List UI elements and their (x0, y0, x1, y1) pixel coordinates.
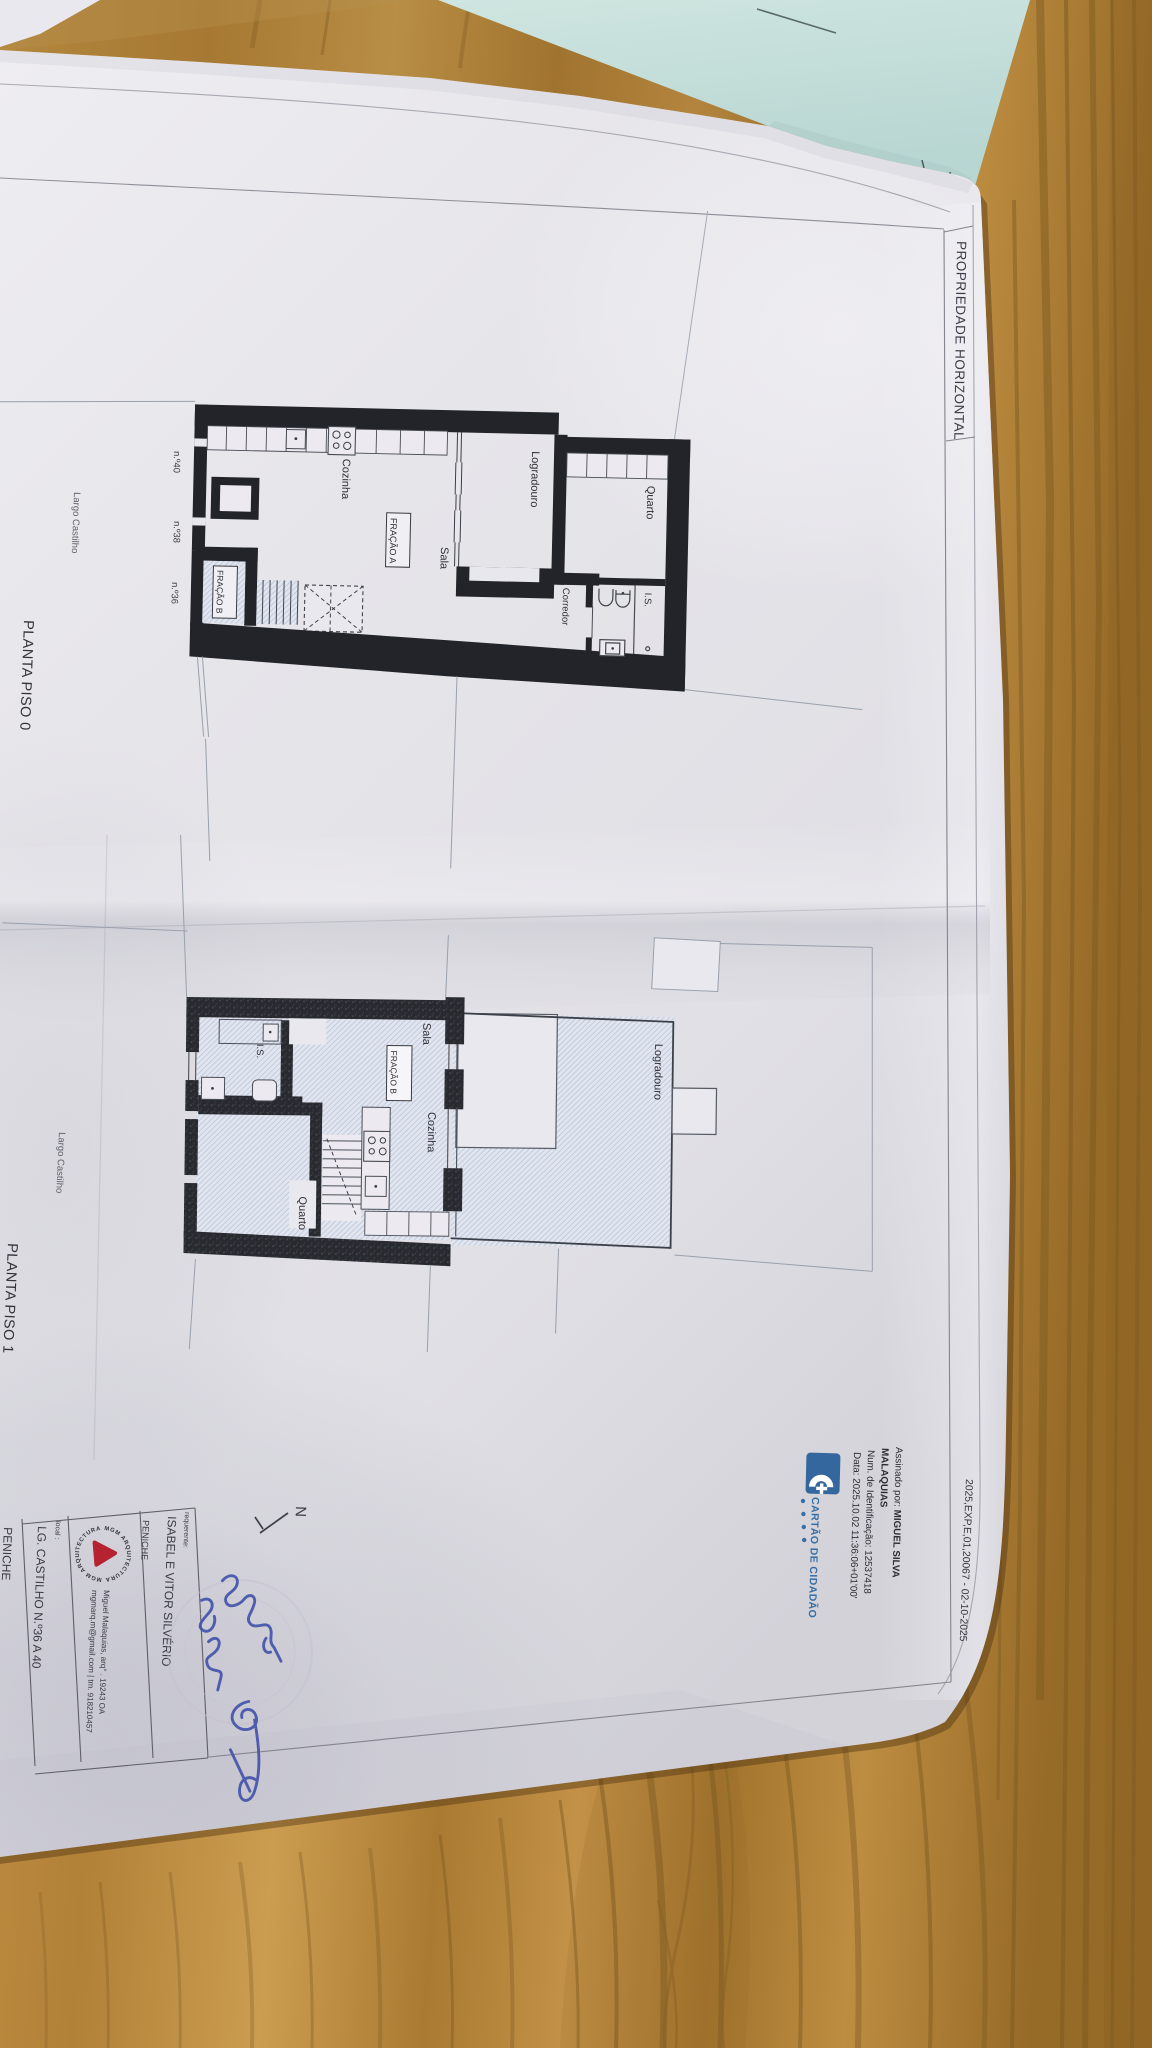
svg-text:local :: local : (53, 1521, 61, 1540)
svg-text:Quarto: Quarto (296, 1196, 308, 1230)
svg-text:Cozinha: Cozinha (425, 1112, 438, 1153)
svg-text:Cozinha: Cozinha (339, 459, 352, 501)
svg-text:n.º40: n.º40 (170, 451, 182, 473)
svg-text:Sala: Sala (437, 547, 450, 570)
svg-text:N: N (292, 1506, 309, 1517)
svg-text:Corredor: Corredor (559, 588, 571, 626)
svg-text:Logradouro: Logradouro (651, 1044, 664, 1100)
svg-text:FRAÇÃO B: FRAÇÃO B (214, 570, 225, 614)
svg-text:I.S.: I.S. (642, 593, 653, 608)
svg-text:I.S.: I.S. (254, 1044, 265, 1058)
svg-text:n.º36: n.º36 (168, 582, 180, 604)
svg-text:FRAÇÃO A: FRAÇÃO A (388, 518, 399, 564)
svg-text:PENICHE: PENICHE (0, 1527, 15, 1581)
svg-text:Logradouro: Logradouro (528, 451, 541, 508)
svg-text:Quarto: Quarto (644, 486, 657, 520)
svg-text:PROPRIEDADE HORIZONTAL: PROPRIEDADE HORIZONTAL (951, 241, 969, 440)
svg-text:Largo Castilho: Largo Castilho (69, 492, 82, 554)
svg-text:requerente:: requerente: (182, 1512, 190, 1548)
svg-text:n.º38: n.º38 (170, 521, 182, 543)
svg-text:PENICHE: PENICHE (139, 1520, 151, 1560)
svg-text:MALAQUIAS: MALAQUIAS (877, 1448, 890, 1508)
svg-text:FRAÇÃO B: FRAÇÃO B (388, 1050, 399, 1094)
svg-text:Sala: Sala (420, 1023, 432, 1046)
